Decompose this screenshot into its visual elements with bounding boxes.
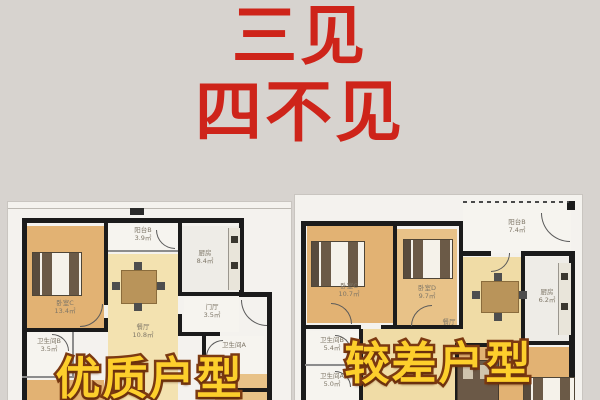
- chair-icon: [494, 273, 502, 281]
- title-line-2: 四不见: [0, 74, 600, 150]
- poster: 三见 四不见: [0, 0, 600, 400]
- chair-icon: [112, 282, 120, 290]
- caption-bad-plan: 较差户型: [295, 327, 582, 392]
- plan-top-edge: [8, 208, 291, 209]
- wall: [22, 328, 108, 332]
- cropped-label-mark: [130, 208, 144, 215]
- room-label-bedroom-c: 卧室C 13.4㎡: [28, 300, 102, 316]
- wall: [22, 218, 244, 223]
- bed-icon: [32, 252, 82, 296]
- door-arc-icon: [241, 300, 267, 326]
- room-label-bedroom-c: 卧室C 10.7㎡: [309, 283, 389, 299]
- chair-icon: [494, 313, 502, 321]
- room-label-kitchen: 厨房 6.2㎡: [523, 289, 571, 305]
- wall: [178, 332, 220, 336]
- dining-table-icon: [121, 270, 157, 304]
- floorplan-good: 卧室C 13.4㎡ 阳台B 3.9㎡ 厨房 8.4㎡ 餐厅 10.8㎡ 门厅 3…: [8, 202, 291, 400]
- wall: [463, 251, 491, 256]
- room-label-bedroom-d: 卧室D 9.7㎡: [399, 285, 455, 301]
- wall: [393, 225, 397, 325]
- bed-icon: [403, 239, 453, 279]
- wall: [178, 292, 239, 296]
- poster-title: 三见 四不见: [0, 0, 600, 150]
- chair-icon: [157, 282, 165, 290]
- room-label-dining: 餐厅 10.8㎡: [108, 324, 178, 340]
- chair-icon: [134, 303, 142, 311]
- caption-good-plan: 优质户型: [8, 342, 291, 400]
- bed-icon: [311, 241, 365, 287]
- wall: [108, 250, 178, 252]
- room-label-balcony-b: 阳台B 7.4㎡: [465, 219, 569, 235]
- room-label-balcony-b: 阳台B 3.9㎡: [108, 227, 178, 243]
- balcony-dashed-wall: [463, 201, 569, 203]
- title-line-1: 三见: [0, 0, 600, 74]
- dining-table-icon: [481, 281, 519, 313]
- room-label-kitchen: 厨房 8.4㎡: [182, 250, 228, 266]
- kitchen-counter-icon: [228, 228, 240, 290]
- floorplan-bad: 卧室C 10.7㎡ 卧室D 9.7㎡ 阳台B 7.4㎡ 厨房 6.2㎡ 餐厅 卫…: [295, 195, 582, 400]
- wall: [301, 221, 463, 226]
- wall: [521, 251, 573, 256]
- room-label-hall: 门厅 3.5㎡: [186, 304, 238, 320]
- chair-icon: [472, 291, 480, 299]
- room-label-dining: 餐厅: [429, 319, 469, 327]
- chair-icon: [134, 262, 142, 270]
- wall: [459, 221, 463, 329]
